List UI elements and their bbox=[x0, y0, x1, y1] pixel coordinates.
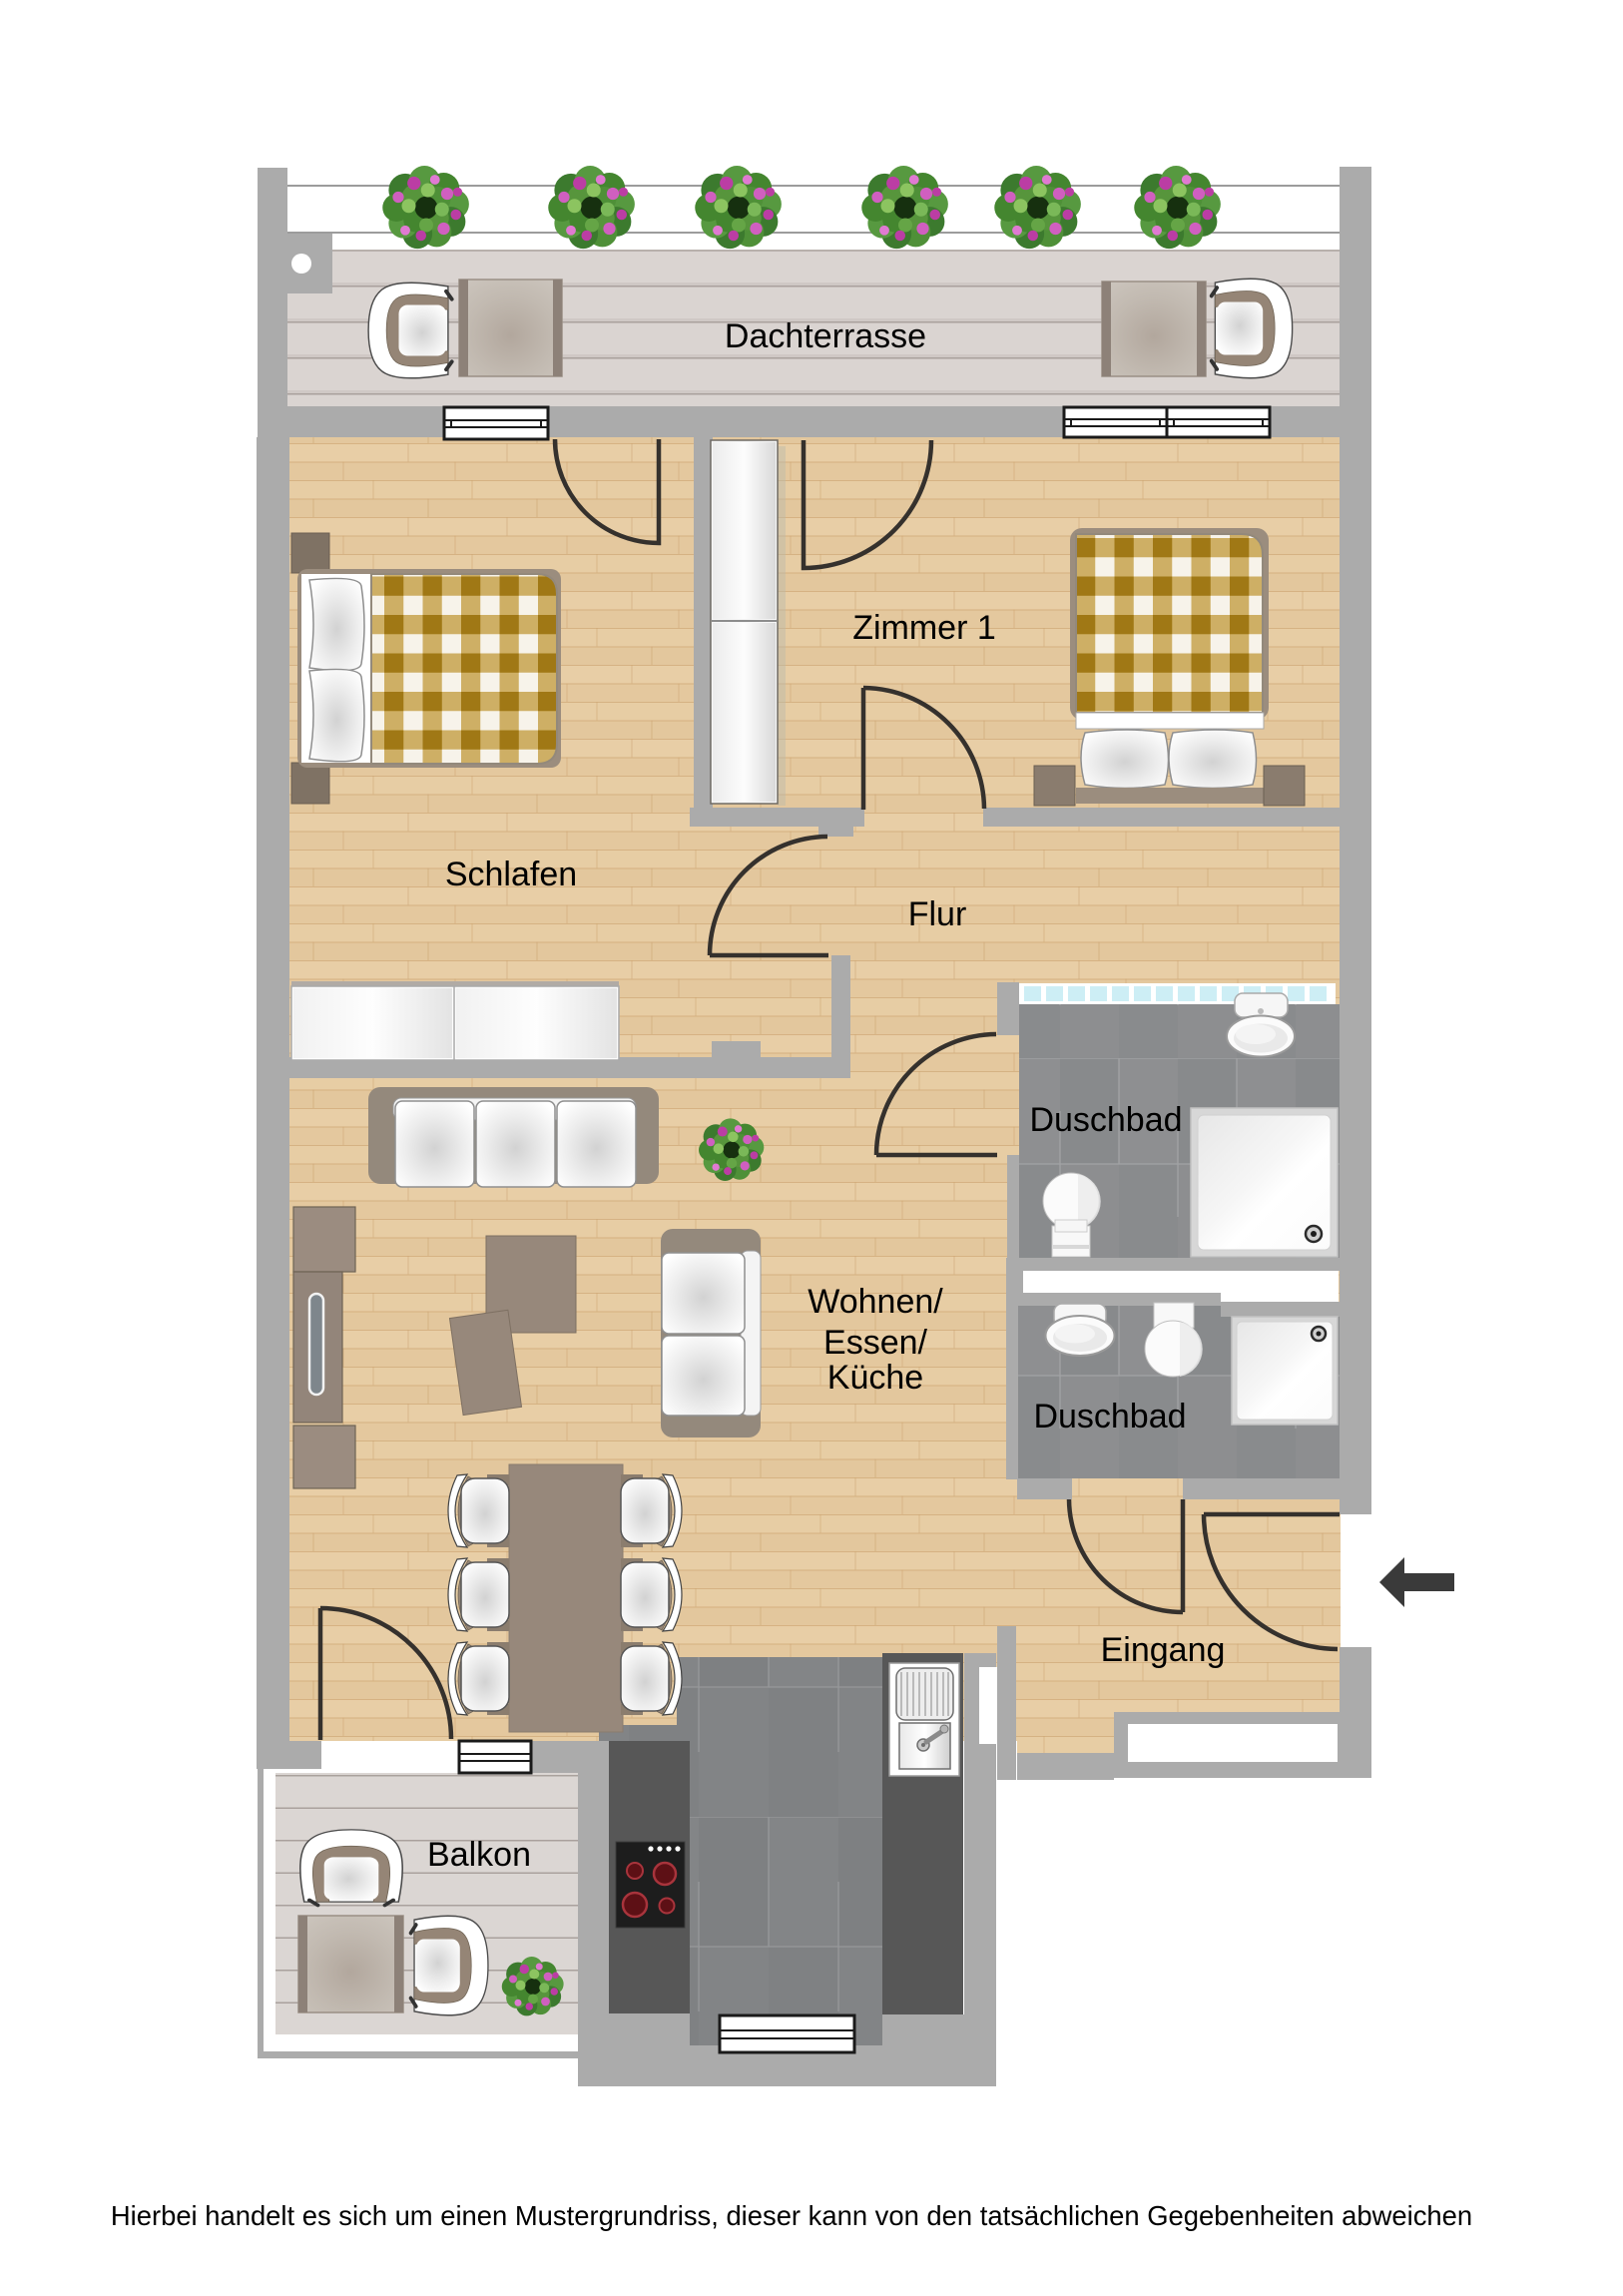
svg-text:Wohnen/: Wohnen/ bbox=[808, 1283, 943, 1321]
svg-text:Hierbei handelt es sich um ein: Hierbei handelt es sich um einen Musterg… bbox=[111, 2200, 1472, 2231]
svg-text:Dachterrasse: Dachterrasse bbox=[725, 317, 926, 355]
svg-text:Duschbad: Duschbad bbox=[1029, 1101, 1182, 1139]
svg-text:Essen/: Essen/ bbox=[823, 1324, 927, 1362]
svg-text:Küche: Küche bbox=[827, 1359, 923, 1397]
svg-text:Schlafen: Schlafen bbox=[445, 856, 577, 893]
svg-text:Flur: Flur bbox=[908, 895, 967, 933]
svg-text:Balkon: Balkon bbox=[427, 1836, 531, 1874]
svg-text:Zimmer 1: Zimmer 1 bbox=[852, 609, 996, 647]
svg-text:Eingang: Eingang bbox=[1101, 1631, 1226, 1669]
svg-text:Duschbad: Duschbad bbox=[1033, 1398, 1186, 1435]
